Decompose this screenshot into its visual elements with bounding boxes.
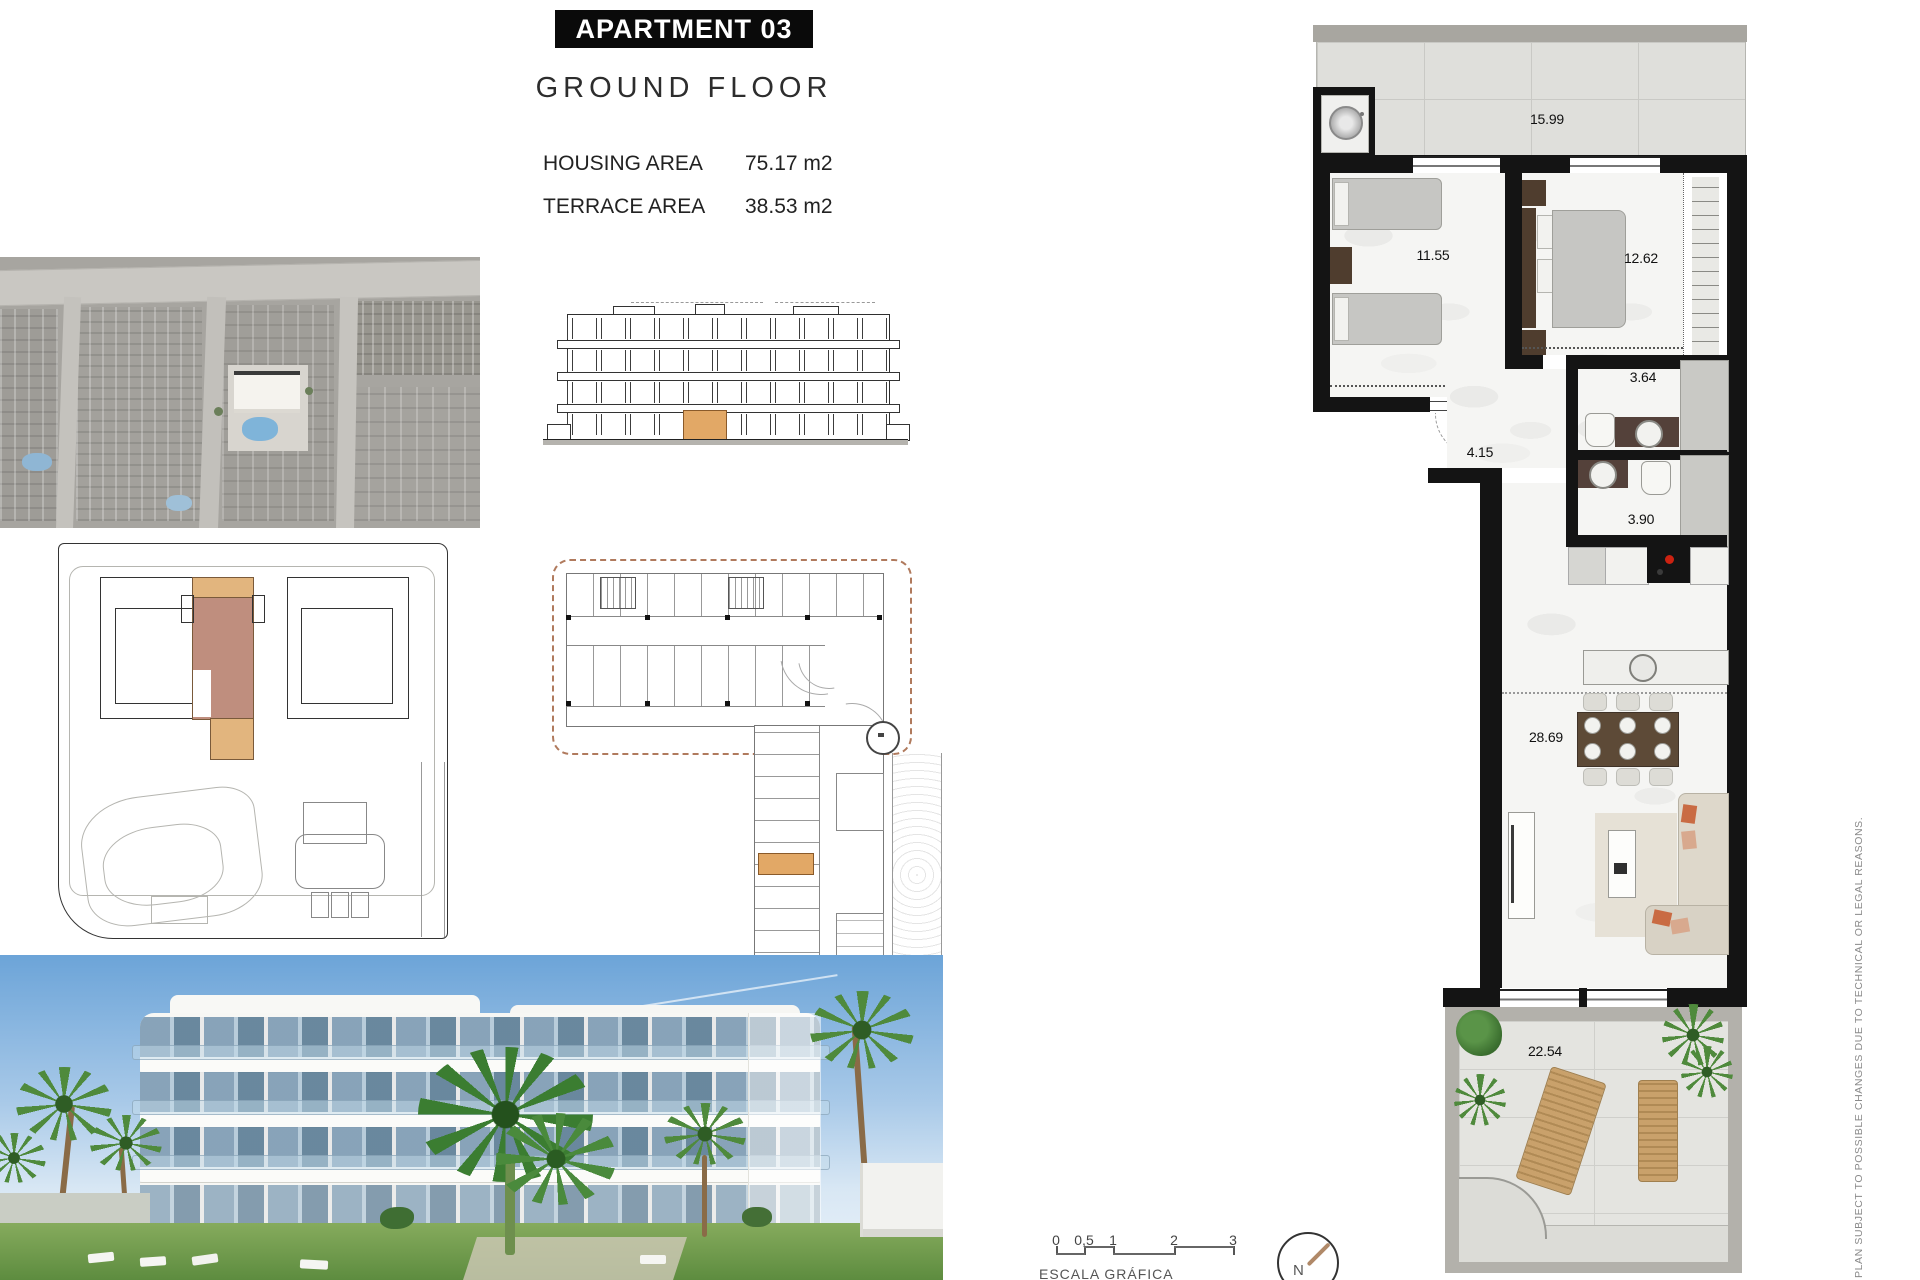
dining-chair	[1649, 768, 1673, 786]
kitchen-counter	[1690, 547, 1729, 585]
sun-lounger	[300, 1259, 328, 1269]
unit-terrace-top-highlight	[192, 577, 254, 599]
ground-line	[543, 439, 908, 445]
palm-tree	[664, 1103, 746, 1165]
place-setting	[1619, 717, 1636, 734]
room-area-label: 15.99	[1507, 111, 1587, 127]
north-arrow-icon	[1307, 1242, 1331, 1266]
wall-segment	[1313, 155, 1330, 412]
highlighted-parking-stall	[758, 853, 814, 875]
scale-bar: 0 0,5 1 2 3 ESCALA GRÁFICA	[1045, 1232, 1265, 1280]
parking-plan	[540, 553, 952, 953]
room-area-label: 12.62	[1601, 250, 1681, 266]
dining-chair	[1616, 768, 1640, 786]
terrace-area-row: TERRACE AREA 38.53 m2	[543, 195, 833, 219]
wall-segment	[1727, 155, 1747, 1007]
ramp-circle	[866, 721, 900, 755]
scale-segment	[1174, 1246, 1234, 1248]
site-plan	[55, 540, 453, 945]
tv-icon	[1511, 825, 1514, 903]
scale-segment	[1113, 1253, 1175, 1255]
road-strip	[421, 762, 445, 937]
unit-highlight-notch	[193, 670, 211, 717]
sofa-pillow	[1681, 804, 1697, 824]
burner-dot	[1665, 555, 1674, 564]
bush-plant	[1456, 1010, 1502, 1056]
palm-tree	[810, 991, 914, 1069]
site-building	[234, 371, 300, 413]
window-row	[567, 382, 888, 403]
coffee-table-tray	[1614, 863, 1627, 874]
concrete-band	[1313, 25, 1747, 42]
washer-knob	[1360, 112, 1364, 116]
room-area-label: 28.69	[1506, 729, 1586, 745]
city-block	[352, 387, 480, 521]
dining-chair	[1649, 693, 1673, 711]
closet-dotted-line	[1522, 347, 1683, 349]
washer-drum	[1329, 106, 1363, 140]
window-row	[567, 318, 888, 339]
sofa-pillow	[1681, 830, 1697, 849]
city-block	[352, 301, 480, 375]
housing-area-row: HOUSING AREA 75.17 m2	[543, 152, 833, 176]
wall-segment	[1566, 535, 1727, 547]
page-subtitle: GROUND FLOOR	[528, 72, 840, 105]
place-setting	[1619, 743, 1636, 760]
unit-terrace-bottom-highlight	[210, 718, 254, 760]
balcony-slab	[557, 404, 900, 413]
scale-segment	[1056, 1253, 1085, 1255]
room-area-label: 22.54	[1505, 1043, 1585, 1059]
window-row	[567, 414, 888, 435]
kitchen-cabinet	[1568, 547, 1607, 585]
elevation-drawing	[543, 298, 908, 450]
pool	[166, 495, 192, 511]
kitchen-boundary-dotted	[1502, 692, 1727, 694]
window-row	[567, 350, 888, 371]
amenity-square	[331, 892, 349, 918]
place-setting	[1654, 717, 1671, 734]
wall-segment	[1313, 397, 1430, 412]
building-render	[0, 955, 943, 1280]
wall-segment	[1313, 155, 1747, 173]
palm-plant	[1681, 1046, 1733, 1098]
site-pool	[242, 417, 278, 441]
wall-segment	[1443, 988, 1500, 1007]
island-sink-icon	[1629, 654, 1657, 682]
aerial-photo	[0, 257, 480, 528]
pillar	[566, 615, 571, 620]
window-post	[1579, 988, 1587, 1007]
city-block	[0, 309, 58, 521]
banana-plant	[496, 1113, 616, 1205]
balcony-slab	[557, 340, 900, 349]
pool-house-outline	[151, 896, 208, 924]
palm-tree	[90, 1115, 162, 1171]
city-block	[76, 307, 202, 521]
amenity-square	[311, 892, 329, 918]
plan-sheet: APARTMENT 03 GROUND FLOOR HOUSING AREA 7…	[0, 0, 1920, 1280]
burner-dot	[1657, 569, 1663, 575]
toilet	[1641, 461, 1671, 495]
palm-tree	[0, 1133, 46, 1183]
sink-icon	[1589, 461, 1617, 489]
bed-headboard	[1522, 208, 1536, 328]
nightstand	[1522, 180, 1546, 206]
link-block	[181, 595, 194, 623]
dining-chair	[1583, 768, 1607, 786]
stair-core	[728, 577, 764, 609]
pillar	[645, 701, 650, 706]
place-setting	[1584, 743, 1601, 760]
terrace-area-value: 38.53 m2	[745, 195, 833, 219]
room-area-label: 3.90	[1601, 511, 1681, 527]
washing-machine-icon	[1321, 95, 1369, 153]
bed	[1552, 210, 1626, 328]
roof-dashes	[775, 302, 875, 304]
palm-plant	[1454, 1074, 1506, 1126]
place-setting	[1584, 717, 1601, 734]
pillar	[645, 615, 650, 620]
nightstand	[1330, 247, 1352, 284]
sun-lounger	[140, 1256, 167, 1267]
kitchen-counter	[1605, 547, 1649, 585]
scale-segment	[1084, 1246, 1114, 1248]
place-setting	[1654, 743, 1671, 760]
cooktop-icon	[1647, 547, 1690, 583]
amenity-square	[351, 892, 369, 918]
side-room	[836, 773, 884, 831]
ramp-circle-dot	[878, 733, 884, 737]
pool	[22, 453, 52, 471]
wall-segment	[1428, 468, 1502, 483]
building-footprint-right-inner	[301, 608, 393, 704]
highlighted-unit	[683, 410, 727, 442]
pillar	[805, 701, 810, 706]
room-area-label: 4.15	[1440, 444, 1520, 460]
pergola	[860, 1163, 943, 1237]
pillar	[566, 701, 571, 706]
shower	[1680, 360, 1729, 452]
pillar	[725, 615, 730, 620]
pillow	[1334, 297, 1349, 341]
pillar	[877, 615, 882, 620]
page-title: APARTMENT 03	[555, 10, 813, 48]
room-laundry-terrace	[1316, 42, 1746, 155]
wall-segment	[1505, 173, 1522, 365]
garden-shrub	[742, 1207, 772, 1227]
pillow	[1334, 182, 1349, 226]
shower	[1680, 455, 1729, 547]
amenity-rounded	[295, 834, 385, 889]
disclaimer-text: PLAN SUBJECT TO POSSIBLE CHANGES DUE TO …	[1853, 812, 1865, 1278]
link-block	[252, 595, 265, 623]
sun-lounger	[1638, 1080, 1678, 1182]
north-label: N	[1293, 1262, 1304, 1279]
dining-chair	[1583, 693, 1607, 711]
garden-shrub	[380, 1207, 414, 1229]
wall-segment	[1667, 988, 1747, 1007]
palm-trunk	[702, 1155, 707, 1237]
nightstand	[1522, 330, 1546, 356]
stair-core	[600, 577, 636, 609]
tree	[214, 407, 223, 416]
balcony-slab	[557, 372, 900, 381]
terrace-area-label: TERRACE AREA	[543, 195, 745, 219]
wall-segment	[1480, 483, 1502, 988]
sun-lounger	[640, 1255, 666, 1264]
room-area-label: 11.55	[1393, 247, 1473, 263]
room-area-label: 3.64	[1603, 369, 1683, 385]
sink-icon	[1635, 420, 1663, 448]
scale-bar-label: ESCALA GRÁFICA	[1039, 1266, 1174, 1280]
housing-area-value: 75.17 m2	[745, 152, 833, 176]
floor-plan: 15.99 11.55 12.62	[1313, 25, 1747, 1275]
tree	[305, 387, 313, 395]
housing-area-label: HOUSING AREA	[543, 152, 745, 176]
toilet	[1585, 413, 1615, 447]
dining-chair	[1616, 693, 1640, 711]
pillar	[725, 701, 730, 706]
